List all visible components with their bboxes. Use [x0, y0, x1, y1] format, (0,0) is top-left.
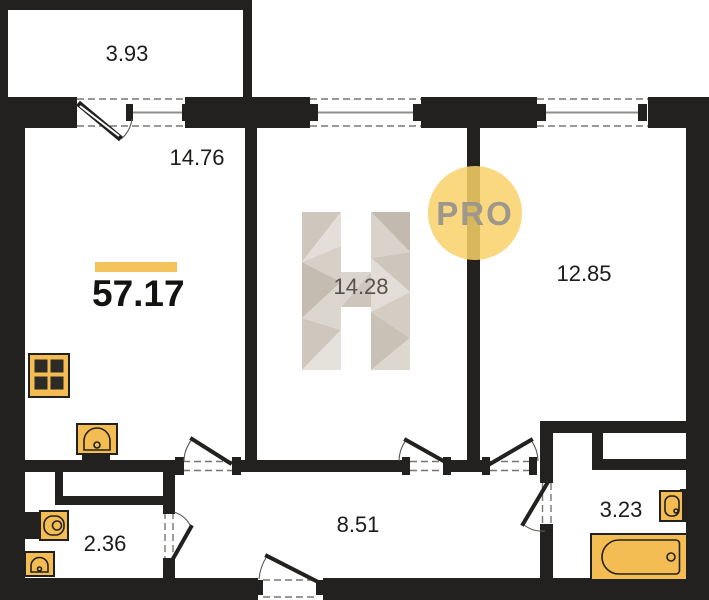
pro-badge-label: PRO — [436, 195, 514, 232]
wall-segment — [55, 472, 63, 505]
hall-area-label: 8.51 — [337, 512, 380, 537]
wc-area-label: 2.36 — [84, 531, 127, 556]
wall-segment — [55, 496, 170, 505]
wall-segment — [0, 97, 25, 600]
door-room-right — [482, 440, 538, 475]
wall-segment — [0, 0, 252, 10]
bath-sink-icon — [660, 489, 687, 522]
total-area-label: 57.17 — [92, 273, 185, 314]
wall-segment — [540, 433, 553, 481]
floor-plan: PRO 3.93 14.76 14.28 12.85 8.51 2.36 3.2… — [0, 0, 709, 600]
door-wc — [163, 506, 191, 566]
wall-segment — [232, 460, 410, 472]
wall-segment — [648, 97, 709, 128]
living-area-label: 14.76 — [169, 145, 224, 170]
wall-segment — [0, 578, 258, 600]
bathtub-icon — [591, 534, 687, 580]
wall-segment — [592, 433, 603, 463]
toilet-icon — [25, 511, 68, 540]
wall-segment — [323, 578, 709, 600]
bath-area-label: 3.23 — [600, 497, 643, 522]
door-entrance — [256, 556, 323, 597]
total-area-underline — [95, 262, 177, 272]
wall-segment — [686, 128, 709, 600]
door-arc — [121, 119, 132, 139]
wall-segment — [0, 0, 8, 97]
wall-segment — [421, 97, 537, 128]
wall-segment — [540, 530, 553, 578]
windows — [77, 99, 648, 126]
washbasin-icon — [25, 552, 54, 576]
wall-segment — [540, 421, 686, 433]
stove-icon — [29, 354, 69, 397]
right-room-area-label: 12.85 — [556, 261, 611, 286]
balcony-area-label: 3.93 — [106, 41, 149, 66]
door-living — [175, 439, 241, 475]
wall-segment — [245, 128, 257, 472]
kitchen-sink-icon — [77, 424, 117, 463]
wall-segment — [243, 0, 252, 97]
wall-segment — [592, 459, 686, 470]
wall-segment — [163, 564, 175, 578]
door-bath — [523, 475, 553, 532]
wall-segment — [185, 97, 310, 128]
floor-plan-canvas: PRO 3.93 14.76 14.28 12.85 8.51 2.36 3.2… — [0, 0, 709, 600]
pro-badge: PRO — [428, 166, 522, 260]
door-room-center — [399, 440, 451, 475]
center-room-area-label: 14.28 — [333, 274, 388, 299]
